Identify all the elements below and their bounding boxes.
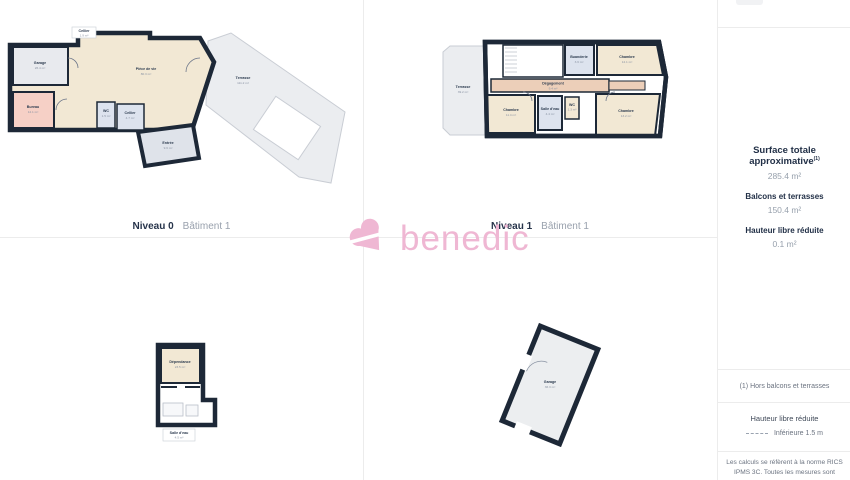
svg-text:Garage: Garage [544,380,556,384]
dashed-line-icon [746,433,768,434]
room-cellier: Cellier 4.7 m² [117,104,144,130]
benedic-heart-icon [348,216,390,260]
floorplan-niveau0: Terrasse 111.2 m² Entrée 9.6 m² Garage 2… [0,0,363,237]
svg-text:36.3 m²: 36.3 m² [545,385,556,389]
room-terrasse-niveau0: Terrasse 111.2 m² [206,33,345,183]
metric-label-hauteur: Hauteur libre réduite [718,226,850,235]
svg-text:4.4 m²: 4.4 m² [546,112,555,116]
room-terrasse-niveau1: Terrasse 39.2 m² [443,46,485,135]
svg-text:WC: WC [569,103,575,107]
legend-row: Inférieure 1.5 m [718,430,850,437]
svg-text:Bureau: Bureau [27,105,39,109]
room-dependance: Dépendance 23.5 m² [161,348,200,383]
caption-level-label: Niveau 0 [133,221,174,232]
svg-text:Chambre: Chambre [618,109,634,113]
svg-text:12.1 m²: 12.1 m² [28,110,39,114]
floorplan-niveau1: Terrasse 39.2 m² Chambre 12.1 m² Buander… [363,0,717,237]
svg-text:Buanderie: Buanderie [570,55,588,59]
room-degagement: Dégagement 9.4 m² [491,79,645,92]
room-salle-deau-annexe: Salle d'eau 4.5 m² [163,429,195,441]
room-entree: Entrée 9.6 m² [138,125,199,166]
svg-text:Entrée: Entrée [162,141,173,145]
floorplan-garage: Garage 36.3 m² [363,237,717,480]
room-wc-niveau0: WC 1.5 m² [97,102,115,128]
agency-logo [736,0,763,5]
caption-building-label: Bâtiment 1 [541,221,589,232]
svg-text:WC: WC [103,109,109,113]
room-bureau: Bureau 12.1 m² [13,92,54,128]
caption-niveau0: Niveau 0 Bâtiment 1 [0,221,363,232]
svg-text:Terrasse: Terrasse [236,76,251,80]
svg-text:Terrasse: Terrasse [456,85,471,89]
svg-text:4.7 m²: 4.7 m² [126,116,135,120]
metric-label-surface-totale: Surface totale approximative(1) [718,145,850,167]
stairwell [503,45,563,77]
svg-text:23.5 m²: 23.5 m² [175,365,186,369]
room-garage-batiment: Garage 36.3 m² [496,324,598,447]
sidebar-footnote: (1) Hors balcons et terrasses [718,369,850,403]
room-wc-niveau1: WC 1.3 m² [565,97,579,119]
svg-text:Chambre: Chambre [619,55,635,59]
svg-text:9.4 m²: 9.4 m² [549,87,558,91]
disclaimer-line-2: IPMS 3C. Toutes les mesures sont [718,468,850,478]
room-chambre-3: Chambre 13.2 m² [596,94,660,136]
svg-text:Garage: Garage [34,61,46,65]
svg-text:111.2 m²: 111.2 m² [237,81,249,85]
svg-text:Pièce de vie: Pièce de vie [136,67,157,71]
metric-value-surface-totale: 285.4 m² [718,171,850,181]
benedic-wordmark: benedic [400,221,530,256]
svg-text:9.6 m²: 9.6 m² [164,146,173,150]
metric-label-balcons: Balcons et terrasses [718,192,850,201]
svg-text:1.5 m²: 1.5 m² [102,114,111,118]
room-salle-deau: Salle d'eau 4.4 m² [538,96,562,130]
caption-building-label: Bâtiment 1 [183,221,231,232]
disclaimer-line-1: Les calculs se réfèrent à la norme RICS [718,458,850,468]
svg-text:4.5 m²: 4.5 m² [175,436,184,440]
benedic-watermark: benedic [348,216,530,260]
surface-summary: Surface totale approximative(1) 285.4 m²… [718,145,850,260]
svg-text:Salle d'eau: Salle d'eau [541,107,560,111]
svg-text:11.4 m²: 11.4 m² [506,113,516,117]
svg-text:3.6 m²: 3.6 m² [575,60,584,64]
disclaimer-text: Les calculs se réfèrent à la norme RICS … [718,451,850,480]
legend-item-label: Inférieure 1.5 m [774,430,823,437]
legend-title: Hauteur libre réduite [718,414,850,423]
svg-text:Dégagement: Dégagement [542,82,564,86]
room-chambre-2: Chambre 11.4 m² [487,95,535,133]
svg-text:80.3 m²: 80.3 m² [141,72,152,76]
svg-text:Dépendance: Dépendance [169,360,190,364]
floorplan-document-page: Terrasse 111.2 m² Entrée 9.6 m² Garage 2… [0,0,850,480]
metric-value-hauteur: 0.1 m² [718,239,850,249]
room-cellier-exterieur: Cellier 1.9 m² [72,27,96,38]
legend-section: Hauteur libre réduite Inférieure 1.5 m [718,402,850,452]
footnote-marker: (1) [814,156,820,162]
svg-text:26.4 m²: 26.4 m² [35,66,46,70]
room-chambre-1: Chambre 12.1 m² [597,45,663,75]
svg-text:39.2 m²: 39.2 m² [458,90,469,94]
svg-text:Chambre: Chambre [503,108,519,112]
svg-text:1.3 m²: 1.3 m² [568,108,577,112]
svg-text:Cellier: Cellier [79,29,91,33]
svg-text:12.1 m²: 12.1 m² [622,60,633,64]
svg-text:Cellier: Cellier [125,111,137,115]
summary-sidebar: Surface totale approximative(1) 285.4 m²… [717,0,850,480]
room-garage-niveau0: Garage 26.4 m² [13,47,68,85]
sidebar-header [718,0,850,28]
svg-text:1.9 m²: 1.9 m² [80,34,89,38]
metric-value-balcons: 150.4 m² [718,205,850,215]
svg-text:Salle d'eau: Salle d'eau [170,431,189,435]
svg-text:13.2 m²: 13.2 m² [621,114,632,118]
room-buanderie: Buanderie 3.6 m² [565,45,594,75]
floorplan-annexe: Dépendance 23.5 m² Salle d'eau 4.5 m² [0,237,363,480]
